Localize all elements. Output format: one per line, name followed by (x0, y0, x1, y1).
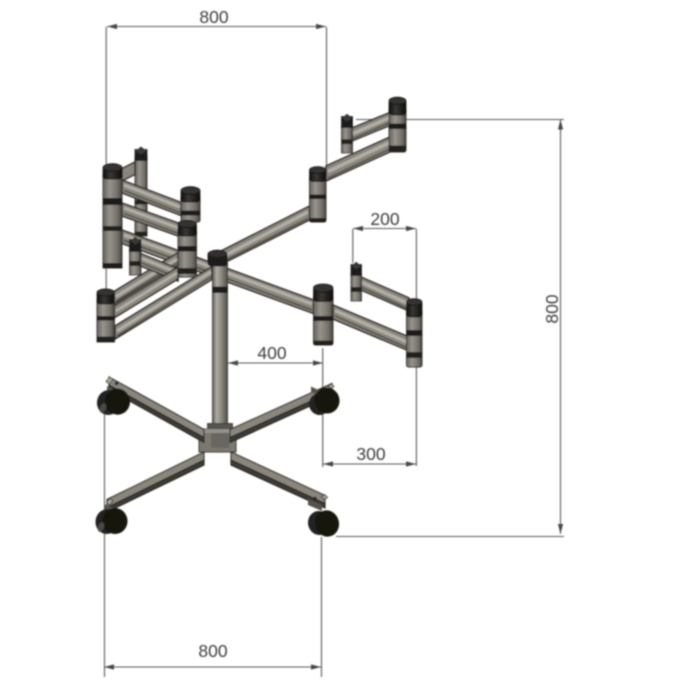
svg-text:800: 800 (198, 641, 227, 661)
svg-text:800: 800 (542, 294, 562, 323)
svg-text:200: 200 (370, 209, 399, 229)
svg-text:300: 300 (356, 444, 385, 464)
svg-text:800: 800 (199, 7, 228, 27)
svg-text:400: 400 (257, 343, 286, 363)
